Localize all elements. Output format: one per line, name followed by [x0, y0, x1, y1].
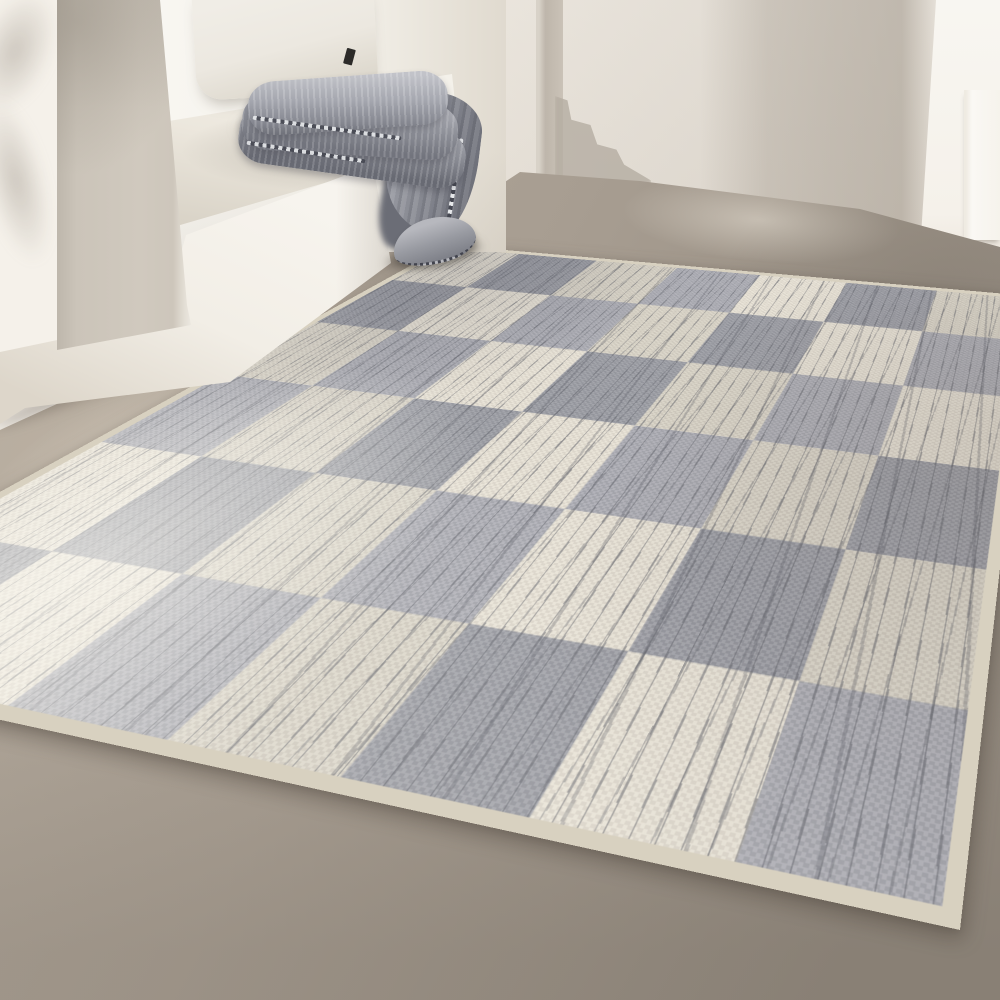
folded-blanket: [225, 55, 505, 285]
room-scene: [0, 0, 1000, 1000]
